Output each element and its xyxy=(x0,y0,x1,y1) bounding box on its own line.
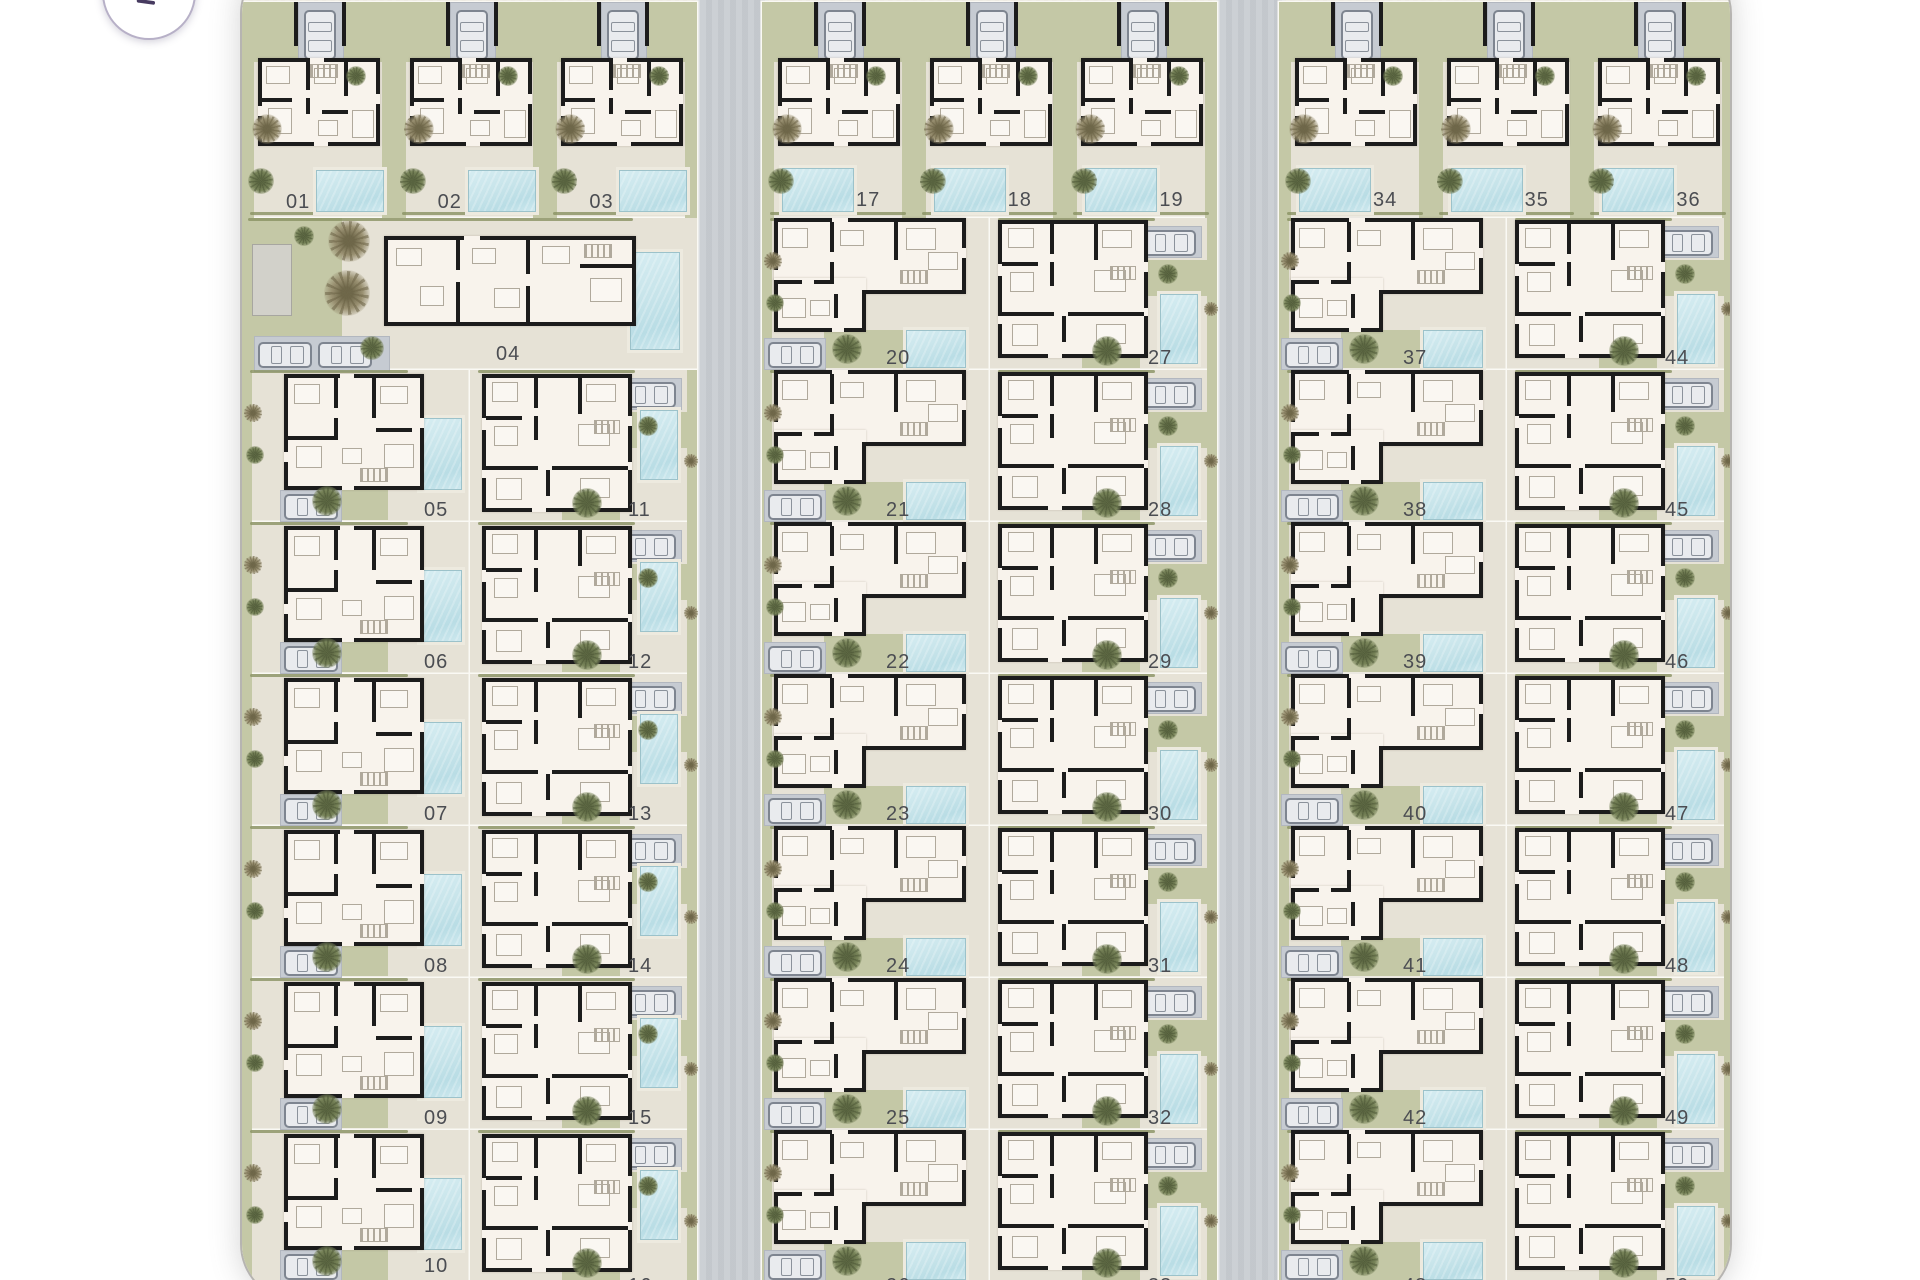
unit-plot[interactable]: 41 xyxy=(1279,826,1507,978)
unit-plot[interactable]: 30 xyxy=(990,674,1217,826)
house-wall xyxy=(482,782,486,816)
house-wall xyxy=(354,1094,424,1098)
house-wall xyxy=(998,828,1002,872)
hedge xyxy=(1590,212,1726,215)
unit-plot[interactable]: 27 xyxy=(990,218,1217,370)
back-button[interactable] xyxy=(102,0,196,40)
house-wall xyxy=(1351,750,1355,774)
furniture-icon xyxy=(1357,838,1381,854)
furniture-icon xyxy=(782,906,806,926)
furniture-icon xyxy=(1445,252,1475,270)
house-wall xyxy=(1383,290,1479,294)
furniture-icon xyxy=(1010,728,1034,748)
house-wall xyxy=(1343,98,1347,114)
house-wall xyxy=(998,932,1002,966)
house-wall xyxy=(1515,428,1519,468)
house-wall xyxy=(1002,1072,1054,1076)
house-wall xyxy=(1515,628,1519,662)
house-wall xyxy=(284,1070,288,1098)
house-wall xyxy=(830,374,834,404)
car-icon xyxy=(1285,494,1339,520)
house-wall xyxy=(1144,424,1148,460)
palm-icon xyxy=(1204,1062,1218,1076)
garden-area xyxy=(1724,370,1732,522)
house-wall xyxy=(998,1036,1002,1076)
furniture-icon xyxy=(1010,424,1034,444)
house-wall xyxy=(1479,978,1483,1008)
pool xyxy=(468,170,536,212)
house-wall xyxy=(1451,98,1481,102)
furniture-icon xyxy=(1357,686,1381,702)
house-wall xyxy=(778,432,802,436)
car-icon xyxy=(1142,534,1196,560)
unit-plot[interactable]: 38 xyxy=(1279,370,1507,522)
house-wall xyxy=(578,378,582,414)
entry-wall xyxy=(1165,2,1169,46)
tree-icon xyxy=(1283,446,1301,464)
furniture-icon xyxy=(1299,1210,1323,1230)
furniture-icon xyxy=(294,1144,320,1164)
furniture-icon xyxy=(1299,228,1325,248)
house-wall xyxy=(1515,220,1665,224)
house-wall xyxy=(628,982,632,1024)
house-wall xyxy=(334,874,338,896)
hedge xyxy=(248,218,633,221)
unit-plot[interactable]: 39 xyxy=(1279,522,1507,674)
stairs-icon xyxy=(1499,64,1527,78)
unit-plot[interactable]: 29 xyxy=(990,522,1217,674)
house-wall xyxy=(774,522,832,526)
house-wall xyxy=(962,1130,966,1160)
palm-icon xyxy=(764,708,782,726)
stairs-icon xyxy=(1110,1026,1136,1040)
house-wall xyxy=(774,674,832,678)
house-wall xyxy=(372,378,376,418)
house-wall xyxy=(1068,1224,1144,1228)
unit-plot[interactable]: 21 xyxy=(762,370,990,522)
unit-plot[interactable]: 40 xyxy=(1279,674,1507,826)
unit-number-label: 37 xyxy=(1403,348,1443,368)
entry-wall xyxy=(1634,2,1638,46)
furniture-icon xyxy=(1012,932,1038,954)
house-wall xyxy=(482,964,532,968)
house-wall xyxy=(998,372,1002,416)
house-wall xyxy=(1050,224,1054,254)
stairs-icon xyxy=(900,726,928,740)
house-wall xyxy=(258,58,310,62)
palm-icon xyxy=(1721,454,1732,468)
house-wall xyxy=(1094,224,1098,260)
house-wall xyxy=(1295,888,1319,892)
house-wall xyxy=(456,240,460,270)
furniture-icon xyxy=(496,1086,522,1108)
unit-number-label: 24 xyxy=(886,956,926,976)
garden-area xyxy=(242,62,254,218)
unit-plot[interactable]: 04 xyxy=(242,218,697,370)
hedge xyxy=(770,212,906,215)
house-wall xyxy=(1567,528,1571,558)
house-wall xyxy=(420,884,424,946)
house-wall xyxy=(1144,576,1148,612)
unit-plot[interactable]: 46 xyxy=(1507,522,1732,674)
house-wall xyxy=(1515,324,1519,358)
house-wall xyxy=(1365,218,1483,222)
unit-plot[interactable]: 37 xyxy=(1279,218,1507,370)
unit-plot[interactable]: 31 xyxy=(990,826,1217,978)
unit-number-label: 23 xyxy=(886,804,926,824)
garden-area xyxy=(1724,826,1732,978)
unit-plot[interactable]: 11 xyxy=(470,370,697,522)
palm-icon xyxy=(1289,114,1319,144)
hedge xyxy=(553,212,689,215)
furniture-icon xyxy=(1619,230,1649,248)
furniture-icon xyxy=(352,110,374,138)
house-wall xyxy=(830,982,834,1012)
palm-icon xyxy=(324,270,370,316)
house-wall xyxy=(996,58,1052,62)
house-wall xyxy=(778,1040,802,1044)
house-wall xyxy=(1515,372,1519,416)
unit-plot[interactable]: 18 xyxy=(914,2,1066,218)
house-wall xyxy=(774,936,832,940)
furniture-icon xyxy=(1529,1084,1555,1106)
car-icon xyxy=(1285,1102,1339,1128)
stairs-icon xyxy=(584,244,612,258)
house-wall xyxy=(1519,1072,1571,1076)
unit-number-label: 30 xyxy=(1148,804,1188,824)
furniture-icon xyxy=(928,404,958,422)
stairs-icon xyxy=(594,420,620,434)
stairs-icon xyxy=(1627,570,1653,584)
furniture-icon xyxy=(590,278,622,302)
unit-plot[interactable]: 15 xyxy=(470,978,697,1130)
house-wall xyxy=(1291,784,1349,788)
house-wall xyxy=(1361,1088,1379,1092)
unit-plot[interactable]: 28 xyxy=(990,370,1217,522)
car-icon xyxy=(1127,10,1159,60)
house-wall xyxy=(1515,980,1665,984)
house-wall xyxy=(1515,1266,1565,1270)
unit-plot[interactable]: 47 xyxy=(1507,674,1732,826)
stairs-icon xyxy=(1627,1178,1653,1192)
unit-plot[interactable]: 07 xyxy=(242,674,470,826)
garden-area xyxy=(1279,62,1291,218)
furniture-icon xyxy=(342,448,362,464)
car-icon xyxy=(1142,838,1196,864)
unit-plot[interactable]: 49 xyxy=(1507,978,1732,1130)
house-wall xyxy=(482,582,486,622)
entry-wall xyxy=(1483,2,1487,46)
house-wall xyxy=(994,110,1020,114)
tree-icon xyxy=(572,944,602,974)
stairs-icon xyxy=(1110,266,1136,280)
house-wall xyxy=(774,632,832,636)
pool xyxy=(906,1242,966,1280)
unit-plot[interactable]: 02 xyxy=(394,2,546,218)
house-wall xyxy=(1291,1130,1349,1134)
tree-icon xyxy=(1283,902,1301,920)
tree-icon xyxy=(1675,1024,1695,1044)
house-wall xyxy=(1479,1170,1483,1206)
unit-plot[interactable]: 08 xyxy=(242,826,470,978)
house-wall xyxy=(862,594,866,636)
house-wall xyxy=(1519,718,1555,722)
unit-plot[interactable]: 10 xyxy=(242,1130,470,1280)
house-wall xyxy=(894,526,898,564)
unit-plot[interactable]: 43 xyxy=(1279,1130,1507,1280)
house-wall xyxy=(420,1134,424,1178)
house-wall xyxy=(1515,828,1665,832)
palm-icon xyxy=(1721,758,1732,772)
house-wall xyxy=(998,658,1048,662)
house-wall xyxy=(354,1246,424,1250)
house-wall xyxy=(1347,1134,1351,1164)
house-wall xyxy=(262,98,292,102)
house-wall xyxy=(978,98,982,114)
tree-icon xyxy=(1092,336,1122,366)
house-wall xyxy=(1515,220,1519,264)
palm-icon xyxy=(1281,1012,1299,1030)
house-wall xyxy=(1094,1136,1098,1172)
unit-plot[interactable]: 03 xyxy=(545,2,697,218)
furniture-icon xyxy=(782,988,808,1008)
tree-icon xyxy=(1283,1206,1301,1224)
house-wall xyxy=(420,678,424,722)
entry-wall xyxy=(1014,2,1018,46)
furniture-icon xyxy=(1541,110,1563,138)
unit-plot[interactable]: 22 xyxy=(762,522,990,674)
site-plan-canvas: 0102030405060708091011121314151617181920… xyxy=(0,0,1920,1280)
furniture-icon xyxy=(782,298,806,318)
house-wall xyxy=(1002,768,1054,772)
palm-icon xyxy=(252,114,282,144)
furniture-icon xyxy=(1619,1142,1649,1160)
car-icon xyxy=(1285,1254,1339,1280)
unit-plot[interactable]: 13 xyxy=(470,674,697,826)
house-wall xyxy=(1361,58,1417,62)
house-wall xyxy=(284,918,288,946)
furniture-icon xyxy=(1527,272,1551,292)
house-wall xyxy=(1291,218,1349,222)
house-wall xyxy=(814,1040,834,1044)
house-wall xyxy=(774,1240,832,1244)
house-wall xyxy=(372,1138,376,1178)
unit-plot[interactable]: 48 xyxy=(1507,826,1732,978)
stairs-icon xyxy=(1110,722,1136,736)
house-wall xyxy=(862,1050,866,1092)
unit-plot[interactable]: 34 xyxy=(1279,2,1431,218)
house-wall xyxy=(1519,1224,1571,1228)
tree-icon xyxy=(1609,640,1639,670)
house-wall xyxy=(372,530,376,570)
furniture-icon xyxy=(1299,906,1323,926)
palm-icon xyxy=(1281,1164,1299,1182)
unit-plot[interactable]: 25 xyxy=(762,978,990,1130)
house-wall xyxy=(1567,870,1571,894)
house-wall xyxy=(1413,104,1417,146)
stairs-icon xyxy=(1133,64,1161,78)
house-wall xyxy=(565,98,595,102)
furniture-icon xyxy=(1423,684,1453,706)
house-wall xyxy=(322,110,348,114)
car-icon xyxy=(976,10,1008,60)
house-wall xyxy=(284,374,288,452)
palm-icon xyxy=(684,606,698,620)
unit-plot[interactable]: 01 xyxy=(242,2,394,218)
stairs-icon xyxy=(1110,874,1136,888)
garden-area xyxy=(1724,674,1732,826)
tree-icon xyxy=(1609,792,1639,822)
unit-plot[interactable]: 33 xyxy=(990,1130,1217,1280)
entry-wall xyxy=(814,2,818,46)
house-wall xyxy=(1050,566,1054,590)
furniture-icon xyxy=(569,66,593,84)
house-wall xyxy=(894,374,898,412)
house-wall xyxy=(1515,980,1519,1024)
house-wall xyxy=(534,682,538,712)
pool xyxy=(420,1178,462,1250)
furniture-icon xyxy=(1102,686,1132,704)
house-wall xyxy=(420,580,424,642)
tree-icon xyxy=(1609,1096,1639,1126)
palm-icon xyxy=(764,860,782,878)
unit-plot[interactable]: 24 xyxy=(762,826,990,978)
furniture-icon xyxy=(840,838,864,854)
house-wall xyxy=(1515,828,1519,872)
palm-icon xyxy=(764,556,782,574)
house-wall xyxy=(814,280,834,284)
house-wall xyxy=(552,466,628,470)
house-wall xyxy=(306,98,310,114)
tree-icon xyxy=(638,720,658,740)
garden-area xyxy=(1207,370,1217,522)
unit-number-label: 36 xyxy=(1676,190,1716,210)
house-wall xyxy=(1359,110,1385,114)
unit-plot[interactable]: 36 xyxy=(1582,2,1732,218)
house-wall xyxy=(1002,312,1054,316)
house-wall xyxy=(1515,524,1519,568)
hedge xyxy=(478,674,635,677)
stairs-icon xyxy=(594,724,620,738)
house-wall xyxy=(1295,1040,1319,1044)
unit-plot[interactable]: 12 xyxy=(470,522,697,674)
unit-plot[interactable]: 14 xyxy=(470,826,697,978)
unit-plot[interactable]: 42 xyxy=(1279,978,1507,1130)
house-wall xyxy=(354,374,424,378)
house-wall xyxy=(1661,1032,1665,1068)
unit-plot[interactable]: 19 xyxy=(1065,2,1217,218)
furniture-icon xyxy=(586,840,616,858)
house-wall xyxy=(998,1132,1148,1136)
unit-plot[interactable]: 23 xyxy=(762,674,990,826)
palm-icon xyxy=(1721,1062,1732,1076)
palm-icon xyxy=(684,1214,698,1228)
house-wall xyxy=(1515,884,1519,924)
house-wall xyxy=(334,1178,338,1200)
house-wall xyxy=(998,676,1148,680)
unit-plot[interactable]: 16 xyxy=(470,1130,697,1280)
unit-plot[interactable]: 32 xyxy=(990,978,1217,1130)
furniture-icon xyxy=(840,534,864,550)
house-wall xyxy=(482,374,486,418)
stairs-icon xyxy=(1650,64,1678,78)
furniture-icon xyxy=(1357,382,1381,398)
house-wall xyxy=(284,374,340,378)
house-wall xyxy=(962,714,966,750)
tree-icon xyxy=(832,942,862,972)
unit-plot[interactable]: 50 xyxy=(1507,1130,1732,1280)
unit-plot[interactable]: 05 xyxy=(242,370,470,522)
house-wall xyxy=(546,622,550,648)
house-wall xyxy=(998,676,1002,720)
garden-area xyxy=(1207,522,1217,674)
palm-icon xyxy=(1281,252,1299,270)
unit-plot[interactable]: 06 xyxy=(242,522,470,674)
house-wall xyxy=(1365,978,1483,982)
house-wall xyxy=(284,526,288,604)
unit-plot[interactable]: 45 xyxy=(1507,370,1732,522)
pool xyxy=(619,170,687,212)
house-wall xyxy=(998,324,1002,358)
house-wall xyxy=(580,264,632,268)
unit-plot[interactable]: 20 xyxy=(762,218,990,370)
house-wall xyxy=(1068,920,1144,924)
furniture-icon xyxy=(840,686,864,702)
unit-plot[interactable]: 17 xyxy=(762,2,914,218)
house-wall xyxy=(546,1230,550,1256)
furniture-icon xyxy=(838,120,858,136)
hedge xyxy=(1439,212,1575,215)
furniture-icon xyxy=(1525,532,1551,552)
house-wall xyxy=(476,58,532,62)
house-wall xyxy=(774,370,832,374)
furniture-icon xyxy=(1445,556,1475,574)
house-wall xyxy=(998,1236,1002,1270)
furniture-icon xyxy=(1008,380,1034,400)
unit-plot[interactable]: 44 xyxy=(1507,218,1732,370)
garden-area xyxy=(1722,62,1732,218)
house-wall xyxy=(862,442,866,484)
furniture-icon xyxy=(1175,110,1197,138)
unit-plot[interactable]: 26 xyxy=(762,1130,990,1280)
pool xyxy=(1602,168,1674,212)
furniture-icon xyxy=(1423,532,1453,554)
house-wall xyxy=(1145,110,1171,114)
furniture-icon xyxy=(396,248,422,266)
garden-area xyxy=(687,978,697,1130)
house-wall xyxy=(774,480,832,484)
house-wall xyxy=(1602,98,1632,102)
tree-icon xyxy=(1349,334,1379,364)
house-wall xyxy=(1411,222,1415,260)
unit-plot[interactable]: 09 xyxy=(242,978,470,1130)
entry-wall xyxy=(494,2,498,46)
entry-wall xyxy=(446,2,450,46)
furniture-icon xyxy=(1008,532,1034,552)
tree-icon xyxy=(1437,168,1463,194)
furniture-icon xyxy=(782,532,808,552)
house-wall xyxy=(534,378,538,408)
house-wall xyxy=(1144,220,1148,262)
unit-plot[interactable]: 35 xyxy=(1431,2,1583,218)
house-wall xyxy=(482,830,486,874)
furniture-icon xyxy=(294,384,320,404)
house-wall xyxy=(1347,374,1351,404)
furniture-icon xyxy=(492,534,518,554)
house-wall xyxy=(774,218,832,222)
house-wall xyxy=(1351,1054,1355,1078)
furniture-icon xyxy=(1423,836,1453,858)
